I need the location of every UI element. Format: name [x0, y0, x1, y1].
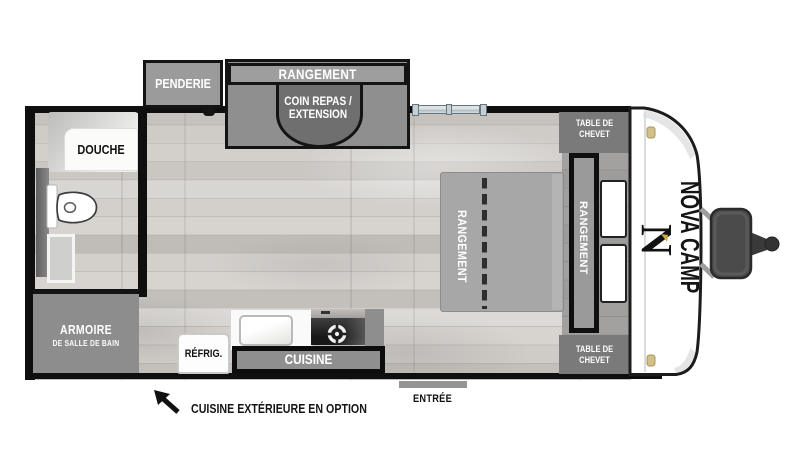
svg-text:NOVA CAMP: NOVA CAMP	[675, 181, 705, 293]
svg-text:N: N	[632, 224, 681, 256]
